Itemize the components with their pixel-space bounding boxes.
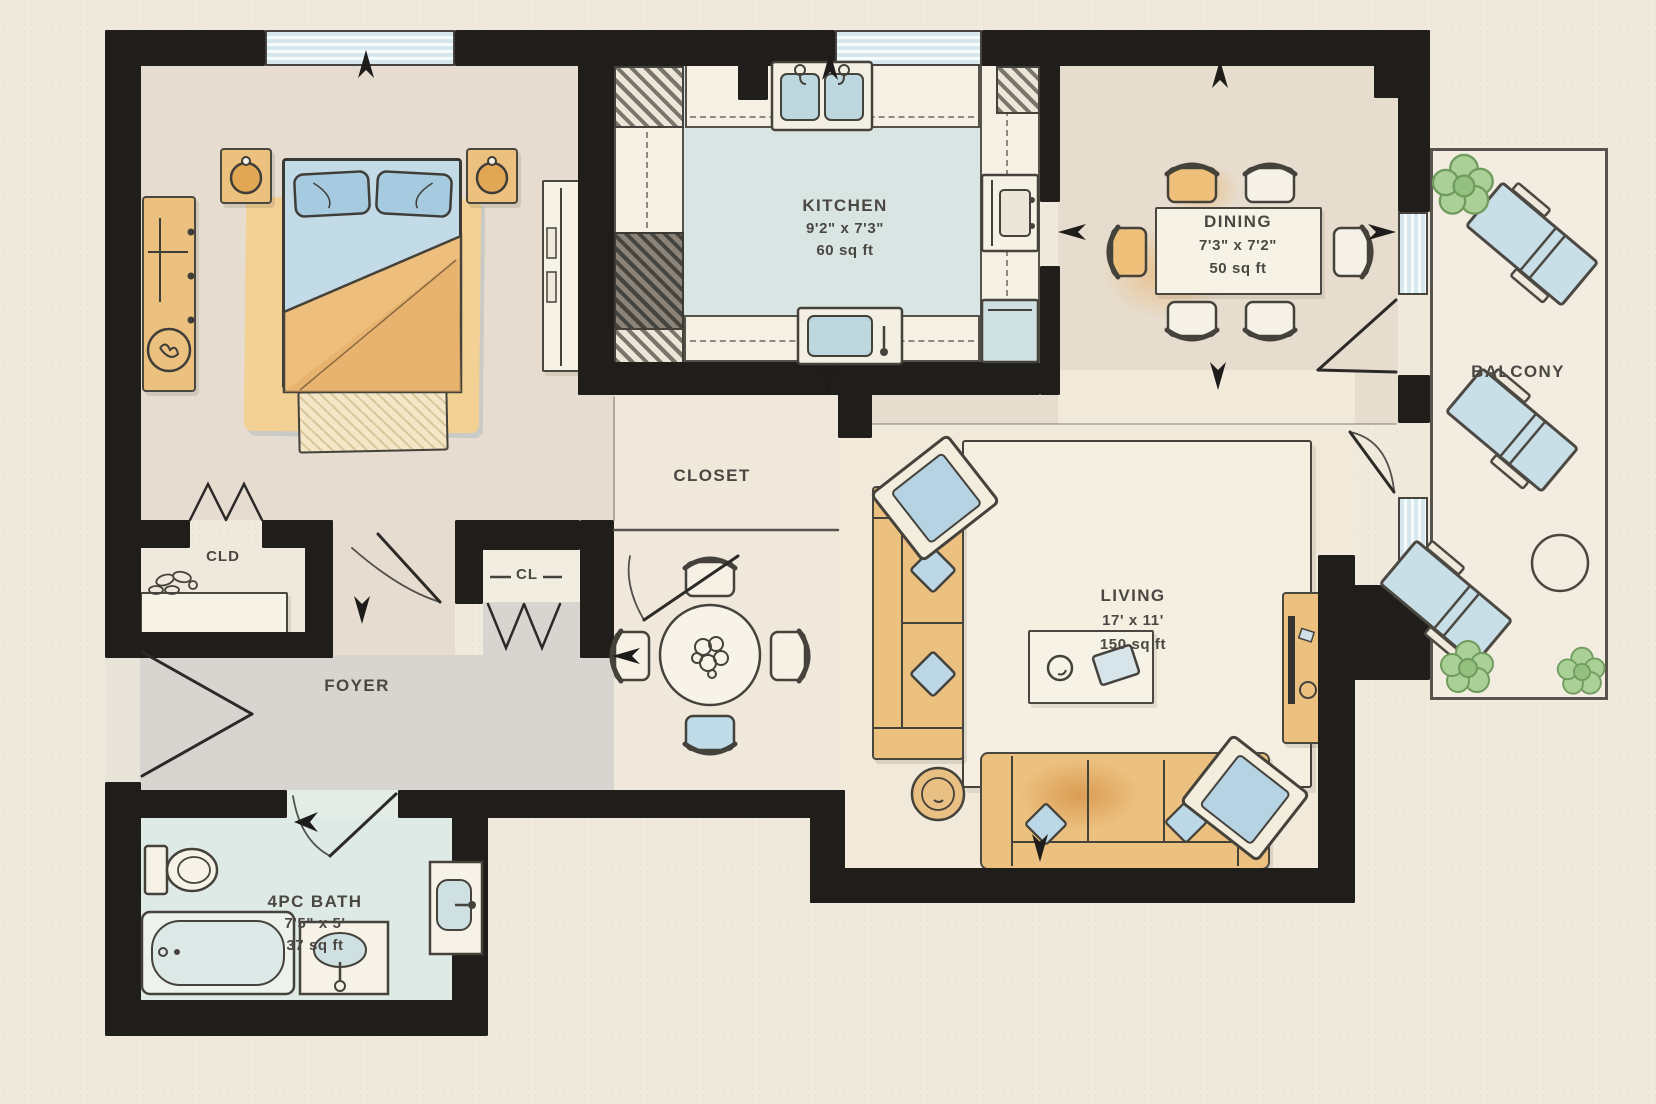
balcony-slider-2 (1398, 497, 1428, 583)
bedroom-wardrobe (542, 180, 580, 372)
corridor-floor (333, 520, 455, 658)
entry-threshold (105, 644, 140, 782)
room-dims-bath: 7'5" x 5' (284, 915, 345, 932)
balcony-door-living (1350, 432, 1394, 492)
kitchen-counter-top (685, 64, 980, 128)
wall-bath-top-left (105, 790, 287, 818)
kitchen-counter-left-dash (646, 132, 648, 228)
dresser (142, 196, 196, 392)
room-label-cld: CLD (206, 548, 240, 565)
floor-plan: KITCHEN 9'2" x 7'3" 60 sq ft DINING 7'3"… (0, 0, 1656, 1104)
nightstand-left (220, 148, 272, 204)
bedroom-window (265, 30, 455, 66)
room-area-bath: 37 sq ft (286, 937, 343, 954)
balcony-slider-1 (1398, 212, 1428, 295)
wall-left-lower (105, 782, 141, 1035)
room-label-balcony: BALCONY (1471, 362, 1565, 382)
wall-bath-top-right (398, 790, 845, 818)
kitchen-fridge (614, 232, 684, 330)
room-label-dining: DINING (1204, 212, 1272, 232)
wall-cl-top (455, 520, 580, 550)
wall-cld-stub-1 (140, 520, 190, 548)
room-label-kitchen: KITCHEN (802, 196, 887, 216)
living-top-strip (872, 395, 1058, 424)
room-area-dining: 50 sq ft (1209, 260, 1266, 277)
wall-kitchen-left (578, 30, 614, 395)
balcony-door-gap-1 (1398, 295, 1430, 375)
kitchen-counter-bottom (684, 315, 980, 362)
wall-kitchen-dining-1 (1040, 30, 1060, 202)
wall-right-upper-3 (1398, 583, 1430, 663)
wall-living-bottom (810, 868, 1355, 903)
bath-threshold (287, 790, 398, 818)
sofa-wash (1020, 760, 1140, 830)
wall-top-notch (738, 64, 768, 100)
wall-right-upper-1 (1398, 30, 1430, 212)
wall-living-stub (838, 362, 872, 438)
bed (282, 158, 462, 390)
wall-cld-bottom (105, 632, 333, 658)
room-dims-dining: 7'3" x 7'2" (1199, 237, 1277, 254)
wall-foyer-nook (580, 520, 614, 658)
kitchen-cab-right-top (996, 66, 1040, 114)
room-area-kitchen: 60 sq ft (816, 242, 873, 259)
room-label-living: LIVING (1100, 586, 1165, 606)
foyer-floor-2 (483, 602, 580, 655)
kitchen-counter-top-dash (690, 116, 974, 118)
room-label-foyer: FOYER (324, 676, 390, 696)
loveseat (872, 486, 964, 760)
bed-bench (297, 388, 448, 453)
room-label-bath: 4PC BATH (268, 892, 363, 912)
wall-bath-right (452, 790, 488, 1036)
balcony-door-gap-2 (1398, 423, 1430, 497)
kitchen-window (835, 30, 982, 66)
tv-console (1282, 592, 1322, 744)
nightstand-right (466, 148, 518, 204)
wall-cl-left (455, 548, 483, 604)
wall-top-2 (455, 30, 835, 66)
wall-bath-bottom (105, 1000, 485, 1036)
room-dims-kitchen: 9'2" x 7'3" (806, 220, 884, 237)
kitchen-counter-left (614, 126, 684, 234)
room-dims-living: 17' x 11' (1102, 612, 1164, 629)
room-label-cl: CL (511, 566, 543, 583)
kitchen-counter-bottom-dash (690, 340, 974, 342)
wall-kitchen-dining-2 (1040, 266, 1060, 395)
room-label-closet: CLOSET (673, 466, 750, 486)
wall-kitchen-bottom (578, 362, 1040, 395)
kitchen-pantry-top (614, 66, 684, 128)
balcony-floor (1430, 148, 1608, 700)
wall-left-upper (105, 30, 141, 644)
hall-closet-nook-floor (614, 395, 838, 790)
room-area-living: 150 sq ft (1100, 636, 1166, 653)
wall-right-upper-2 (1398, 375, 1430, 423)
